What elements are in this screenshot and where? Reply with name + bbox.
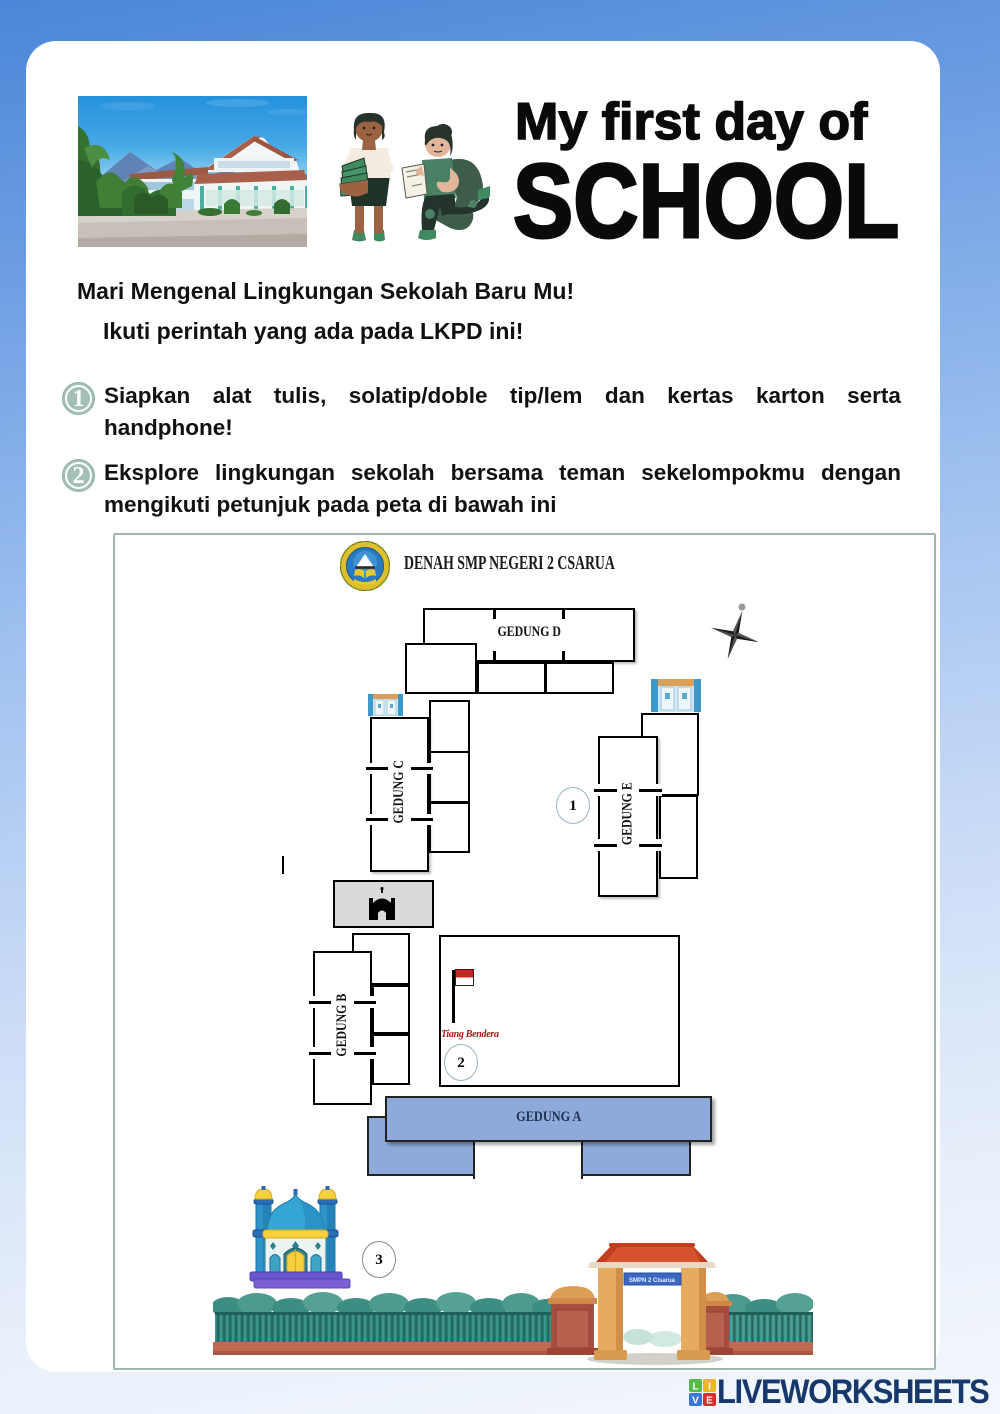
svg-text:I: I (708, 1382, 711, 1393)
svg-text:L: L (692, 1382, 698, 1393)
svg-text:SMPN 2 Cisarua: SMPN 2 Cisarua (629, 1278, 676, 1284)
svg-text:V: V (692, 1396, 699, 1407)
svg-text:E: E (706, 1396, 713, 1407)
